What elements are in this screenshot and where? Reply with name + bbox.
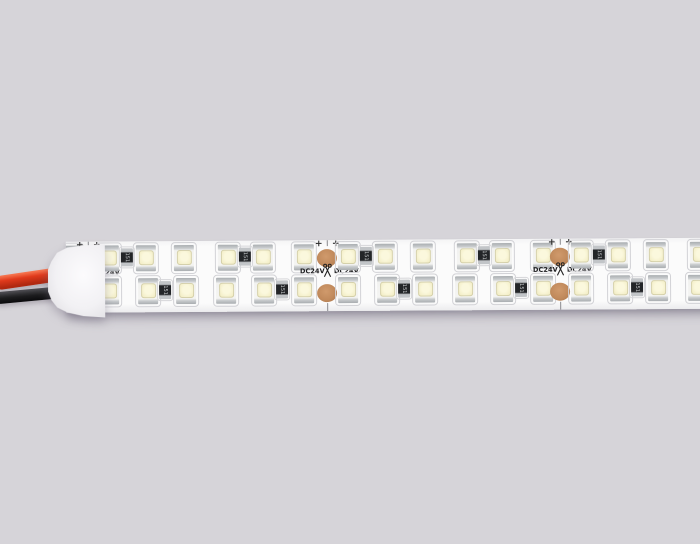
smd-led (218, 245, 238, 271)
smd-led (608, 242, 628, 268)
resistor-code: 151 (632, 282, 642, 292)
cut-mark (559, 239, 561, 245)
chip-resistor: 151 (239, 248, 251, 266)
led-emitting-window (535, 248, 550, 263)
smd-led (610, 275, 630, 301)
smd-led (492, 243, 512, 269)
smd-led (648, 275, 668, 301)
chip-resistor: 151 (159, 281, 171, 299)
plus-mark: + (547, 238, 557, 248)
led-emitting-window (341, 282, 356, 297)
led-emitting-window (257, 282, 272, 297)
led-emitting-window (296, 249, 311, 264)
smd-led (294, 277, 314, 303)
cut-mark (326, 240, 328, 246)
smd-led (338, 244, 358, 270)
smd-led (690, 242, 700, 268)
chip-resistor: 151 (276, 280, 288, 298)
led-emitting-window (255, 249, 270, 264)
smd-led (174, 245, 194, 271)
smd-led (254, 277, 274, 303)
led-emitting-window (219, 283, 234, 298)
led-emitting-window (494, 248, 509, 263)
chip-resistor: 151 (478, 246, 490, 264)
plus-mark: + (314, 239, 324, 249)
led-emitting-window (415, 249, 430, 264)
led-emitting-window (536, 281, 551, 296)
smd-led (377, 277, 397, 303)
solder-pad (550, 283, 570, 301)
led-emitting-window (573, 248, 588, 263)
resistor-code: 151 (594, 249, 604, 259)
led-emitting-window (648, 247, 663, 262)
smd-led (375, 244, 395, 270)
smd-led (571, 276, 591, 302)
chip-resistor: 151 (121, 248, 133, 266)
resistor-code: 151 (277, 284, 287, 294)
led-emitting-window (613, 280, 628, 295)
led-emitting-window (574, 281, 589, 296)
led-emitting-window (377, 249, 392, 264)
smd-led (646, 242, 666, 268)
smd-led (455, 276, 475, 302)
product-photo: ++DC24VDC24V151151151151++DC24VDC24V1511… (0, 0, 700, 544)
smd-led (338, 277, 358, 303)
smd-led (216, 278, 236, 304)
led-emitting-window (418, 281, 433, 296)
led-emitting-window (496, 281, 511, 296)
led-emitting-window (651, 280, 666, 295)
chip-resistor: 151 (515, 279, 527, 297)
chip-resistor: 151 (398, 280, 410, 298)
led-emitting-window (380, 282, 395, 297)
led-emitting-window (691, 280, 700, 295)
led-emitting-window (458, 281, 473, 296)
led-emitting-window (297, 282, 312, 297)
smd-led (136, 245, 156, 271)
smd-led (413, 243, 433, 269)
smd-led (457, 243, 477, 269)
resistor-code: 151 (122, 252, 132, 262)
led-emitting-window (138, 250, 153, 265)
led-emitting-window (692, 247, 700, 262)
led-emitting-window (141, 283, 156, 298)
led-strip: ++DC24VDC24V151151151151++DC24VDC24V1511… (0, 0, 700, 544)
resistor-code: 151 (516, 283, 526, 293)
voltage-label: DC24V (300, 267, 324, 276)
resistor-code: 151 (361, 251, 371, 261)
strip-pcb: ++DC24VDC24V151151151151++DC24VDC24V1511… (66, 238, 700, 313)
chip-resistor: 151 (360, 247, 372, 265)
smd-led (253, 244, 273, 270)
end-cap (48, 244, 105, 317)
resistor-code: 151 (240, 252, 250, 262)
smd-led (138, 278, 158, 304)
cut-mark (327, 303, 329, 311)
smd-led (415, 276, 435, 302)
led-emitting-window (459, 248, 474, 263)
led-emitting-window (179, 283, 194, 298)
scissors-icon (556, 262, 565, 281)
smd-led (493, 276, 513, 302)
led-emitting-window (610, 247, 625, 262)
led-emitting-window (220, 250, 235, 265)
resistor-code: 151 (479, 250, 489, 260)
smd-led (688, 275, 700, 301)
chip-resistor: 151 (593, 245, 605, 263)
chip-resistor: 151 (631, 278, 643, 296)
scissors-icon (323, 263, 332, 282)
smd-led (571, 243, 591, 269)
led-emitting-window (340, 249, 355, 264)
solder-pad (317, 284, 337, 302)
cut-mark (560, 302, 562, 310)
resistor-code: 151 (160, 285, 170, 295)
resistor-code: 151 (399, 284, 409, 294)
voltage-label: DC24V (533, 265, 557, 274)
led-emitting-window (176, 250, 191, 265)
smd-led (176, 278, 196, 304)
